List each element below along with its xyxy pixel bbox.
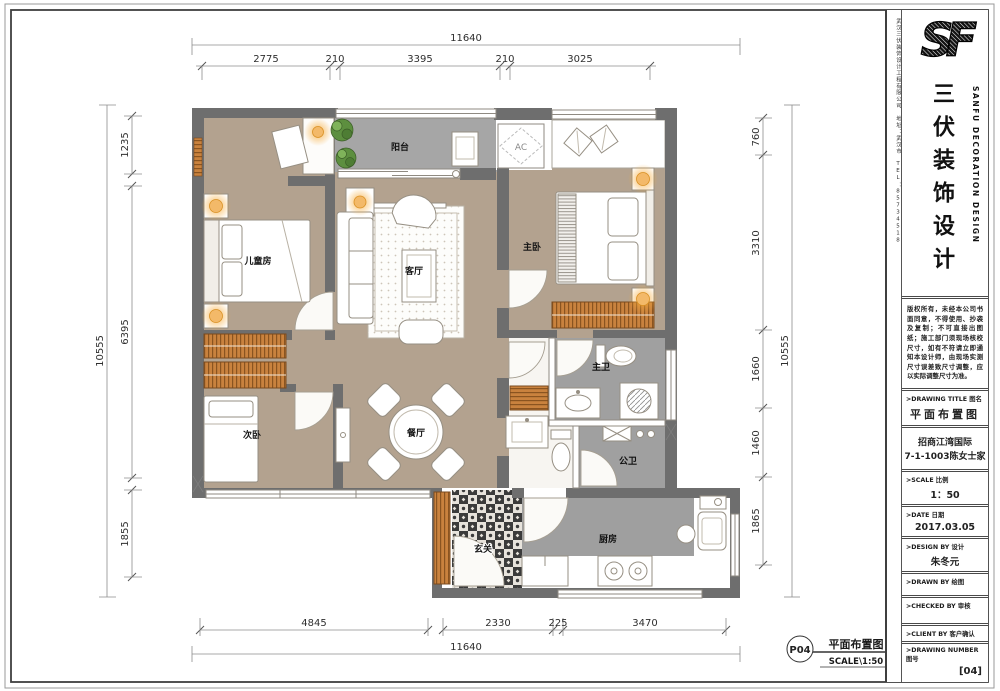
label-guest-bath: 公卫 (619, 456, 637, 467)
label-master: 主卧 (523, 241, 541, 253)
stove (598, 556, 652, 586)
checked-by-section: >CHECKED BY 审核 (902, 598, 988, 626)
svg-text:1855: 1855 (120, 521, 131, 546)
drawing-title-label: >DRAWING TITLE 图名 (906, 394, 984, 403)
project-section: 招商江湾国际 7-1-1003陈女士家 (902, 428, 988, 472)
svg-text:2775: 2775 (253, 54, 278, 65)
floor-plan-svg: AC 儿童房 阳台 客厅 主卧 次卧 餐厅 主卫 公卫 厨房 玄关 (0, 0, 1000, 691)
scale-label: >SCALE 比例 (906, 475, 984, 484)
drawing-title-value: 平面布置图 (906, 406, 984, 422)
label-kitchen: 厨房 (599, 533, 617, 545)
lamp (201, 191, 231, 221)
scale-section: >SCALE 比例 1：50 (902, 472, 988, 507)
company-info-strip: 武汉三伏装饰设计工程有限公司 地址：武汉市 TEL：85734518 (887, 10, 902, 682)
scale-value: 1：50 (906, 487, 984, 501)
entry-door-panel (434, 492, 450, 584)
lamp (628, 284, 658, 314)
svg-text:210: 210 (325, 54, 344, 65)
lamp (201, 301, 231, 331)
drawing-title-section: >DRAWING TITLE 图名 平面布置图 (902, 391, 988, 428)
checked-by-label: >CHECKED BY 审核 (906, 601, 984, 610)
drawn-by-section: >DRAWN BY 绘图 (902, 574, 988, 598)
date-value: 2017.03.05 (906, 522, 984, 533)
drawing-number-label: >DRAWING NUMBER 图号 (906, 647, 984, 663)
drawing-number-value: [04] (906, 666, 984, 677)
svg-text:3470: 3470 (632, 618, 657, 629)
ottoman (399, 320, 443, 344)
label-living: 客厅 (404, 265, 423, 277)
project-unit: 7-1-1003陈女士家 (904, 449, 986, 462)
client-label: >CLIENT BY 客户确认 (906, 629, 984, 638)
svg-text:1235: 1235 (120, 132, 131, 157)
svg-text:1865: 1865 (751, 508, 762, 533)
lamp (304, 118, 332, 146)
hall-vanity (506, 416, 548, 448)
left-wall-panel (194, 138, 202, 176)
label-children: 儿童房 (243, 255, 271, 267)
drawing-sheet: AC 儿童房 阳台 客厅 主卧 次卧 餐厅 主卫 公卫 厨房 玄关 (0, 0, 1000, 691)
sanfu-logo: SF (919, 16, 977, 68)
svg-text:2330: 2330 (485, 618, 510, 629)
designer-section: >DESIGN BY 设计 朱冬元 (902, 539, 988, 574)
drawing-number-section: >DRAWING NUMBER 图号 [04] (902, 644, 988, 682)
svg-text:210: 210 (495, 54, 514, 65)
label-balcony: 阳台 (391, 141, 409, 153)
svg-text:10555: 10555 (780, 335, 791, 367)
date-section: >DATE 日期 2017.03.05 (902, 507, 988, 539)
guest-bath-toilet (551, 430, 571, 471)
svg-text:225: 225 (548, 618, 567, 629)
designer-value: 朱冬元 (906, 554, 984, 568)
drawn-by-label: >DRAWN BY 绘图 (906, 577, 984, 586)
svg-text:760: 760 (751, 127, 762, 146)
brand-name-en: SANFU DECORATION DESIGN (971, 86, 980, 243)
lamp (346, 188, 374, 216)
washing-machine (620, 383, 658, 419)
sofa (337, 212, 373, 324)
ac-closet: AC (498, 124, 544, 168)
stamp-scale: SCALE\1:50 (829, 657, 883, 667)
brand-section: SF 三伏装饰设计 SANFU DECORATION DESIGN (902, 10, 988, 299)
svg-text:6395: 6395 (120, 319, 131, 344)
copyright-notice: 版权所有，未经本公司书面同意，不得使用、抄袭及复制；不可直接出图纸；施工部门须现… (902, 299, 988, 391)
linen-closet (510, 386, 548, 410)
svg-text:SF: SF (920, 16, 976, 64)
svg-text:3310: 3310 (751, 230, 762, 255)
label-entry: 玄关 (474, 543, 492, 555)
stamp-number: P04 (789, 645, 810, 656)
label-master-bath: 主卫 (592, 361, 610, 373)
svg-text:3025: 3025 (567, 54, 592, 65)
dim-top-total: 11640 (450, 33, 482, 44)
stamp-title: 平面布置图 (829, 637, 884, 651)
ac-label: AC (515, 143, 527, 153)
kitchen-cabinet (522, 556, 568, 586)
date-label: >DATE 日期 (906, 510, 984, 519)
project-name: 招商江湾国际 (904, 435, 986, 448)
svg-text:4845: 4845 (301, 618, 326, 629)
label-second: 次卧 (243, 429, 261, 441)
client-section: >CLIENT BY 客户确认 (902, 626, 988, 644)
dim-bottom-total: 11640 (450, 642, 482, 653)
master-bath-vanity (556, 388, 600, 418)
svg-text:1460: 1460 (751, 430, 762, 455)
title-block: 武汉三伏装饰设计工程有限公司 地址：武汉市 TEL：85734518 SF 三伏… (885, 10, 988, 682)
lamp (628, 164, 658, 194)
master-bed (556, 190, 654, 286)
brand-name-cn: 三伏装饰设计 (926, 82, 958, 280)
hall-dresser (336, 408, 350, 462)
svg-text:1660: 1660 (751, 356, 762, 381)
designer-label: >DESIGN BY 设计 (906, 542, 984, 551)
svg-text:10555: 10555 (95, 335, 106, 367)
label-dining: 餐厅 (406, 427, 425, 439)
svg-text:3395: 3395 (407, 54, 432, 65)
